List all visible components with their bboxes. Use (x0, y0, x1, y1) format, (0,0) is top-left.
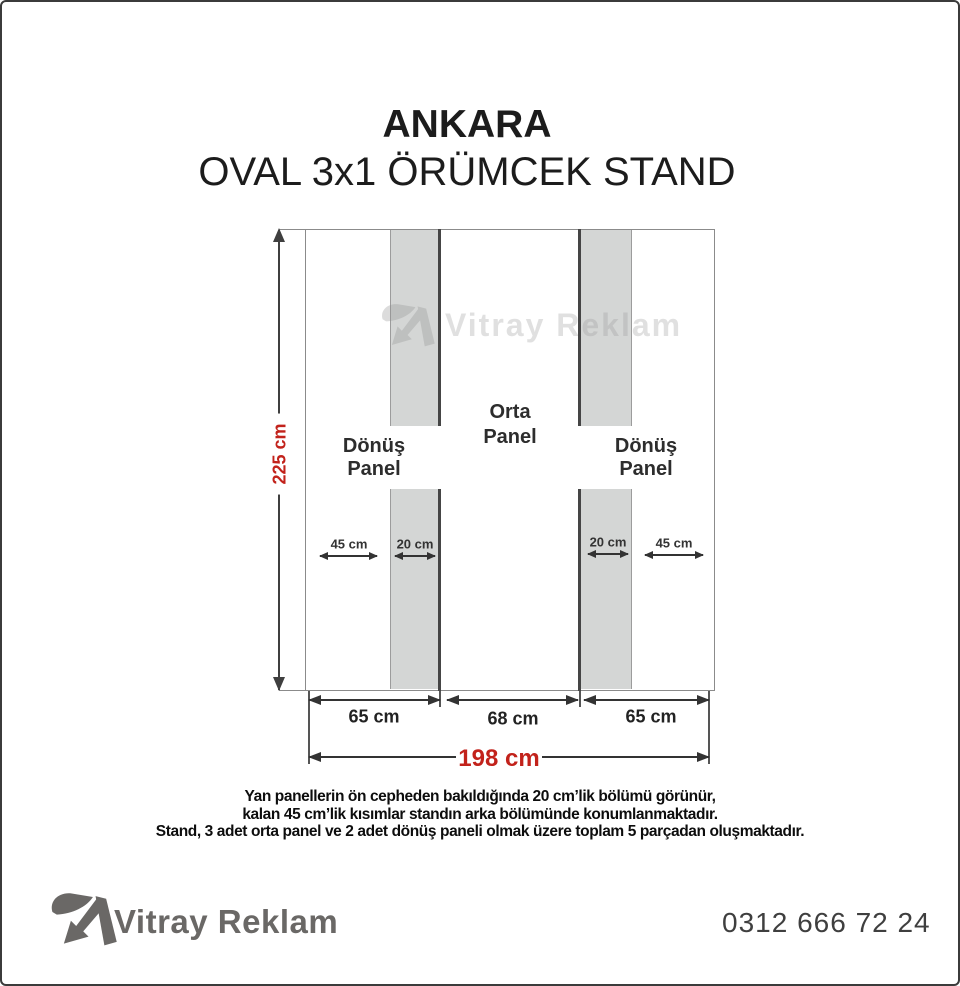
brand-name: Vitray Reklam (114, 903, 338, 941)
total-width-arrow-left (309, 756, 456, 758)
watermark-logo-icon (379, 298, 439, 352)
right-section-width-label: 65 cm (625, 707, 676, 728)
left-panel-label-line2: Panel (306, 458, 442, 481)
brand-logo-icon (48, 886, 122, 952)
left-front-dim-arrow (395, 555, 435, 557)
note-line-1: Yan panellerin ön cepheden bakıldığında … (2, 788, 958, 806)
page-subtitle: OVAL 3x1 ÖRÜMCEK STAND (2, 148, 932, 196)
center-panel-label: Orta Panel (442, 400, 578, 450)
right-front-dim-label: 20 cm (590, 535, 627, 550)
center-panel-label-line2: Panel (442, 425, 578, 450)
arrow-up-icon (273, 228, 285, 242)
right-panel-label-line1: Dönüş (578, 435, 714, 458)
arrow-down-icon (273, 677, 285, 691)
total-width-label: 198 cm (458, 745, 539, 773)
note-line-3: Stand, 3 adet orta panel ve 2 adet dönüş… (2, 823, 958, 841)
right-section-width-arrow (584, 699, 709, 701)
left-front-dim-label: 20 cm (397, 537, 434, 552)
left-panel-label: Dönüş Panel (306, 426, 442, 489)
page-title: ANKARA (2, 102, 932, 148)
left-panel-label-line1: Dönüş (306, 435, 442, 458)
header: ANKARA OVAL 3x1 ÖRÜMCEK STAND (2, 102, 932, 196)
left-section-width-arrow (309, 699, 440, 701)
right-mid-tick (579, 691, 581, 707)
spec-sheet: ANKARA OVAL 3x1 ÖRÜMCEK STAND Vitray Rek… (0, 0, 960, 986)
right-back-dim-label: 45 cm (656, 536, 693, 551)
note-line-2: kalan 45 cm’lik kısımlar standın arka bö… (2, 806, 958, 824)
right-front-dim-arrow (588, 553, 628, 555)
left-section-width-label: 65 cm (348, 707, 399, 728)
right-panel-label: Dönüş Panel (578, 426, 714, 489)
description-notes: Yan panellerin ön cepheden bakıldığında … (2, 788, 958, 841)
left-back-dim-label: 45 cm (331, 537, 368, 552)
right-panel-label-line2: Panel (578, 458, 714, 481)
watermark: Vitray Reklam (379, 298, 682, 352)
center-panel-label-line1: Orta (442, 400, 578, 425)
watermark-text: Vitray Reklam (445, 307, 682, 344)
left-back-dim-arrow (320, 555, 377, 557)
right-back-dim-arrow (645, 554, 703, 556)
center-section-width-label: 68 cm (487, 709, 538, 730)
center-section-width-arrow (447, 699, 578, 701)
phone-number: 0312 666 72 24 (722, 907, 931, 939)
height-dimension-label: 225 cm (262, 413, 299, 494)
total-width-arrow-right (542, 756, 709, 758)
